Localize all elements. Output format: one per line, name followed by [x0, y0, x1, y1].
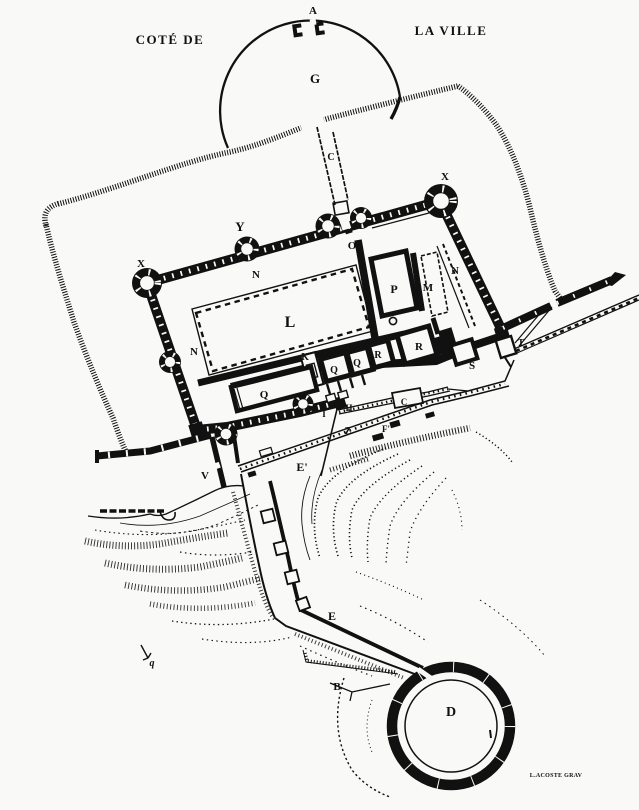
svg-text:X: X [137, 258, 145, 270]
svg-text:Q: Q [353, 358, 361, 369]
svg-text:E': E' [296, 460, 307, 474]
svg-text:X: X [441, 171, 449, 183]
svg-text:C: C [327, 152, 334, 163]
svg-text:q: q [150, 658, 155, 669]
svg-text:N: N [252, 269, 260, 281]
svg-text:D: D [446, 705, 456, 720]
svg-text:P: P [390, 282, 397, 296]
svg-text:K: K [301, 352, 309, 363]
svg-text:V: V [201, 470, 209, 482]
svg-text:R: R [415, 341, 424, 353]
svg-text:A: A [309, 5, 317, 17]
svg-text:Q: Q [330, 365, 338, 376]
svg-text:M: M [423, 282, 434, 294]
svg-text:R: R [374, 350, 382, 361]
svg-text:N: N [190, 346, 198, 358]
svg-text:S: S [469, 360, 475, 372]
svg-text:I: I [322, 409, 326, 419]
svg-text:E: E [328, 609, 336, 623]
svg-text:LA VILLE: LA VILLE [415, 23, 488, 38]
svg-text:Y: Y [235, 219, 245, 234]
svg-text:L: L [285, 314, 296, 331]
svg-text:C: C [401, 397, 408, 407]
svg-text:COTÉ DE: COTÉ DE [136, 32, 205, 47]
svg-text:F': F' [382, 424, 390, 434]
svg-text:L.ACOSTE GRAV: L.ACOSTE GRAV [530, 773, 583, 779]
svg-text:B: B [333, 681, 341, 693]
svg-text:Q: Q [260, 389, 269, 401]
svg-text:G: G [310, 71, 320, 86]
